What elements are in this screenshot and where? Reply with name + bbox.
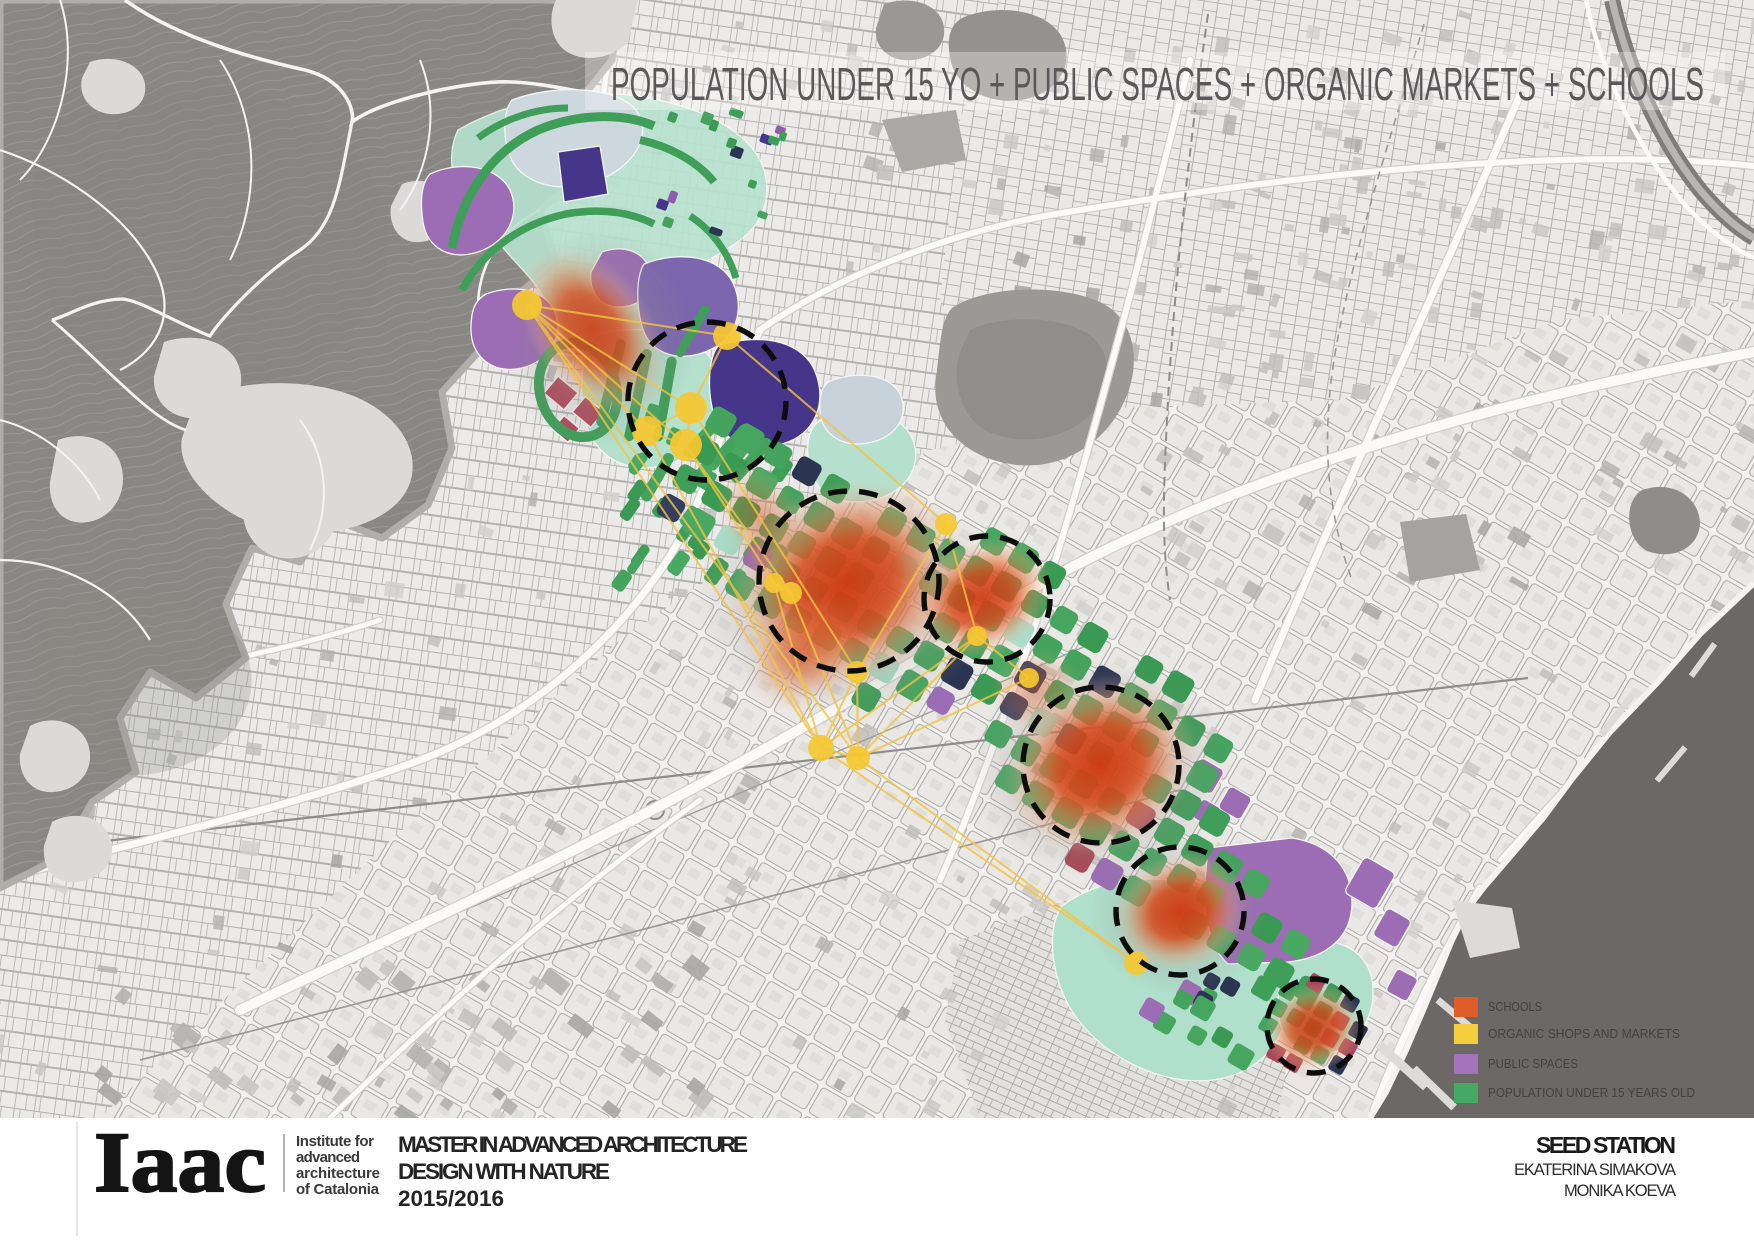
svg-text:POPULATION UNDER 15 YO + PUBLI: POPULATION UNDER 15 YO + PUBLIC SPACES +… bbox=[611, 58, 1704, 110]
svg-text:POPULATION UNDER 15 YEARS OLD: POPULATION UNDER 15 YEARS OLD bbox=[1488, 1086, 1695, 1100]
svg-text:MONIKA KOEVA: MONIKA KOEVA bbox=[1564, 1182, 1676, 1200]
svg-text:ORGANIC SHOPS AND MARKETS: ORGANIC SHOPS AND MARKETS bbox=[1488, 1027, 1680, 1041]
svg-text:DESIGN WITH NATURE: DESIGN WITH NATURE bbox=[398, 1159, 610, 1184]
svg-text:advanced: advanced bbox=[296, 1149, 360, 1166]
svg-text:architecture: architecture bbox=[296, 1165, 380, 1182]
svg-text:MASTER IN ADVANCED ARCHITECTUR: MASTER IN ADVANCED ARCHITECTURE bbox=[398, 1132, 748, 1157]
svg-text:SCHOOLS: SCHOOLS bbox=[1488, 1000, 1542, 1014]
svg-text:2015/2016: 2015/2016 bbox=[398, 1186, 504, 1211]
svg-text:of Catalonia: of Catalonia bbox=[296, 1181, 380, 1198]
svg-text:Institute for: Institute for bbox=[296, 1133, 374, 1150]
svg-text:Iaac: Iaac bbox=[94, 1114, 266, 1210]
svg-text:PUBLIC SPACES: PUBLIC SPACES bbox=[1488, 1057, 1578, 1071]
svg-text:EKATERINA SIMAKOVA: EKATERINA SIMAKOVA bbox=[1514, 1161, 1676, 1179]
svg-text:SEED STATION: SEED STATION bbox=[1536, 1132, 1676, 1158]
